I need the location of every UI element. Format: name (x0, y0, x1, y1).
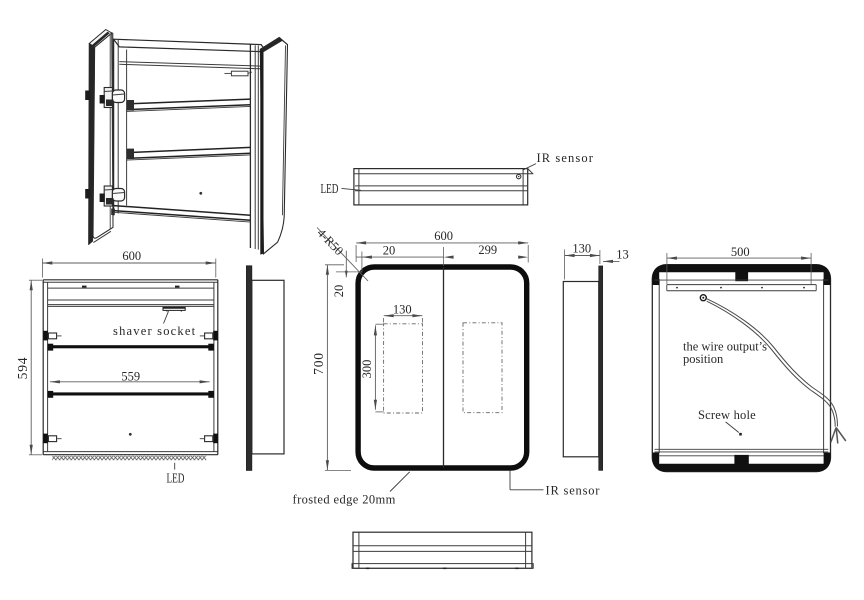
svg-text:20: 20 (332, 285, 346, 298)
svg-text:position: position (683, 352, 724, 366)
svg-text:594: 594 (15, 357, 30, 380)
svg-text:IR sensor: IR sensor (546, 483, 601, 497)
svg-text:LED: LED (321, 182, 339, 197)
svg-text:300: 300 (360, 360, 374, 379)
svg-text:130: 130 (572, 242, 591, 256)
svg-text:IR sensor: IR sensor (537, 151, 594, 165)
svg-text:Screw hole: Screw hole (698, 408, 756, 422)
svg-text:shaver socket: shaver socket (113, 324, 196, 338)
svg-text:13: 13 (616, 248, 629, 262)
svg-text:frosted edge 20mm: frosted edge 20mm (293, 493, 396, 507)
svg-text:20: 20 (383, 244, 396, 258)
svg-text:299: 299 (478, 243, 497, 257)
svg-text:LED: LED (167, 471, 185, 486)
svg-text:600: 600 (122, 249, 141, 263)
svg-text:600: 600 (434, 229, 453, 243)
svg-text:130: 130 (393, 303, 412, 317)
svg-text:700: 700 (311, 352, 326, 375)
svg-text:559: 559 (121, 369, 140, 383)
svg-text:500: 500 (731, 245, 750, 259)
